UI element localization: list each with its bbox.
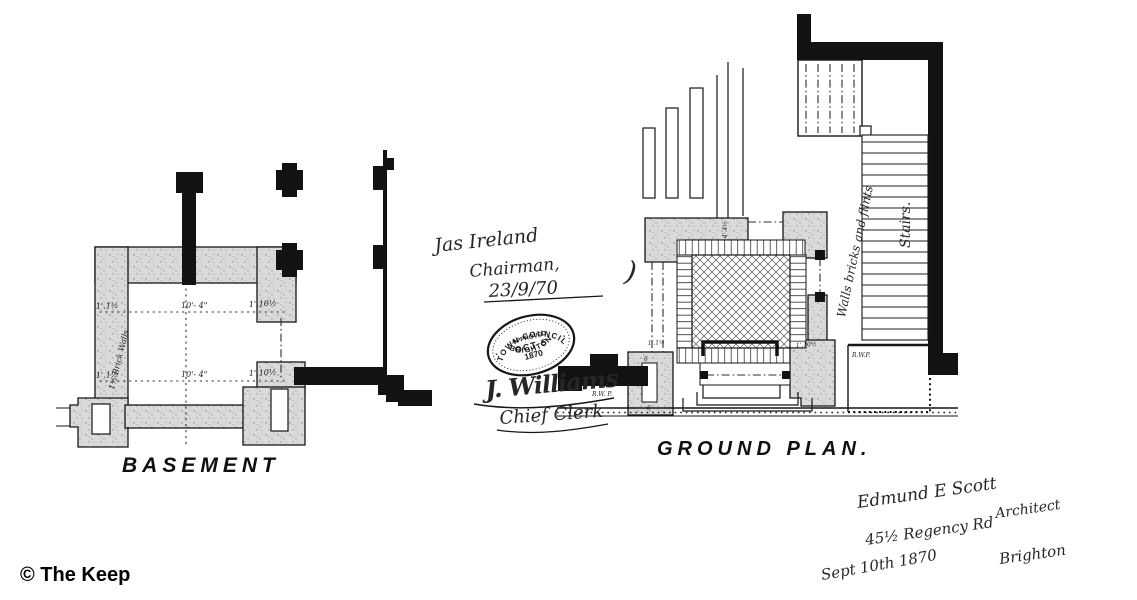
architect-signature-block: Edmund E Scott Architect 45½ Regency Rd … bbox=[820, 474, 1067, 584]
party-wall-right bbox=[928, 42, 943, 375]
approval-annotations: Jas Ireland Chairman, 23/9/70 ) TOWN COU… bbox=[429, 224, 639, 432]
dim-upper-left: 1'.1½ bbox=[96, 301, 119, 311]
brick-border-left bbox=[677, 255, 692, 348]
cross-pier-upper bbox=[276, 163, 303, 197]
gp-dim-left: 1'.1½ bbox=[648, 339, 666, 347]
gp-dim-top: 4'.4½ bbox=[722, 221, 729, 239]
right-jamb-lower bbox=[815, 292, 825, 302]
boundary-pier-lower bbox=[373, 245, 383, 269]
dim-lower-right: 1'.10½ bbox=[249, 368, 277, 378]
basement-title: BASEMENT bbox=[122, 454, 280, 477]
boundary-band-upper bbox=[294, 367, 386, 385]
party-wall-return bbox=[930, 353, 958, 375]
brick-border-bottom bbox=[677, 348, 790, 363]
clerk-title: Chief Clerk bbox=[499, 401, 604, 429]
bracket-mark: ) bbox=[622, 254, 639, 288]
chairman-name: Jas Ireland bbox=[429, 224, 539, 257]
architect-address: 45½ Regency Rd bbox=[863, 513, 994, 549]
rwp-label-right: R.W.P. bbox=[851, 352, 870, 359]
boundary-band-tail bbox=[398, 400, 432, 406]
tiled-floor bbox=[692, 255, 790, 348]
step-platform bbox=[700, 363, 790, 385]
scanned-architectural-drawing: 1'.1½ 10'- 4" 1'.10½ 1'.1½ 10'- 4" 1'.10… bbox=[0, 0, 1137, 600]
architect-name: Edmund E Scott bbox=[855, 474, 998, 514]
architect-title: Architect bbox=[992, 497, 1061, 522]
gp-dim-right: 1'.10½ bbox=[796, 341, 817, 349]
right-jamb-upper bbox=[815, 250, 825, 260]
dim-lower-center: 10'- 4" bbox=[181, 370, 207, 379]
boundary-top-tab bbox=[387, 158, 394, 170]
niche-mark-top: 6 bbox=[644, 356, 648, 363]
ground-plan-title: GROUND PLAN. bbox=[657, 438, 871, 460]
basement-plan: 1'.1½ 10'- 4" 1'.10½ 1'.1½ 10'- 4" 1'.10… bbox=[56, 150, 432, 477]
stairs-label: Stairs. bbox=[898, 202, 914, 248]
basement-window-right bbox=[271, 389, 288, 431]
step-rail-end-right bbox=[782, 371, 790, 379]
joist-strips bbox=[643, 62, 743, 218]
basement-bottom-wall bbox=[125, 405, 245, 428]
boundary-wall-line bbox=[383, 150, 387, 380]
rwp-room: R.W.P. bbox=[848, 345, 930, 412]
tower-bottom-right-block bbox=[790, 340, 835, 406]
architect-town: Brighton bbox=[997, 541, 1067, 568]
boundary-pier-upper bbox=[373, 166, 383, 190]
basement-service-lines bbox=[56, 408, 70, 426]
tower-right-strip bbox=[808, 295, 827, 345]
step-1 bbox=[703, 385, 780, 398]
party-wall-top bbox=[797, 42, 937, 60]
drawing-canvas: 1'.1½ 10'- 4" 1'.10½ 1'.1½ 10'- 4" 1'.10… bbox=[0, 0, 1137, 600]
brick-border-top bbox=[677, 240, 805, 255]
basement-window-left bbox=[92, 404, 110, 434]
copyright-watermark: © The Keep bbox=[20, 564, 130, 587]
dim-upper-center: 10'- 4" bbox=[181, 301, 207, 310]
ground-plan: Stairs. 6 6 bbox=[557, 14, 958, 460]
step-rail-end-left bbox=[700, 371, 708, 379]
brick-border-right bbox=[790, 255, 806, 348]
architect-date: Sept 10th 1870 bbox=[820, 546, 939, 584]
stamp-dot-left: · bbox=[494, 349, 499, 359]
staircase-treads bbox=[862, 135, 928, 340]
dim-upper-right: 1'.10½ bbox=[249, 299, 277, 309]
